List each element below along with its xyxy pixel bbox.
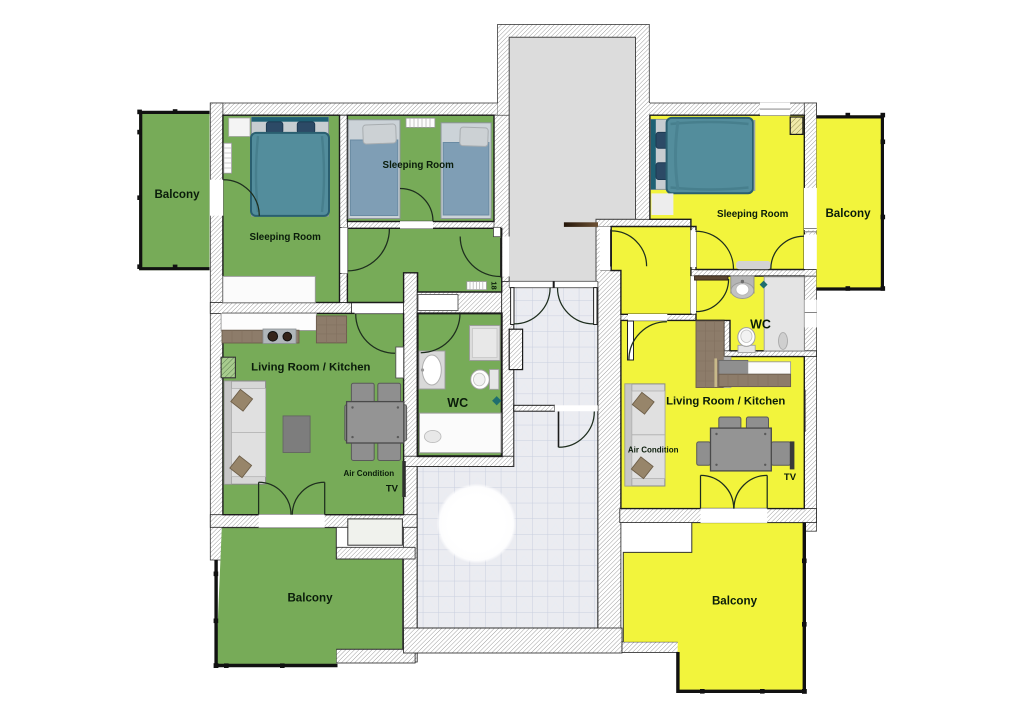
svg-text:WC: WC [750,318,771,332]
svg-text:Sleeping Room: Sleeping Room [250,232,322,243]
svg-text:Air Condition: Air Condition [628,445,679,454]
svg-text:Living Room / Kitchen: Living Room / Kitchen [666,396,785,408]
svg-text:Balcony: Balcony [712,595,758,608]
svg-text:TV: TV [386,484,399,495]
svg-text:TV: TV [784,472,797,483]
svg-text:WC: WC [447,396,468,410]
svg-text:Air Condition: Air Condition [343,469,394,478]
svg-text:Balcony: Balcony [154,188,200,201]
svg-text:18: 18 [490,281,499,289]
svg-text:Balcony: Balcony [825,207,871,220]
svg-text:Sleeping Room: Sleeping Room [383,160,455,171]
svg-text:Living Room / Kitchen: Living Room / Kitchen [251,362,370,374]
svg-text:Sleeping Room: Sleeping Room [717,209,789,220]
svg-text:Balcony: Balcony [287,592,333,605]
